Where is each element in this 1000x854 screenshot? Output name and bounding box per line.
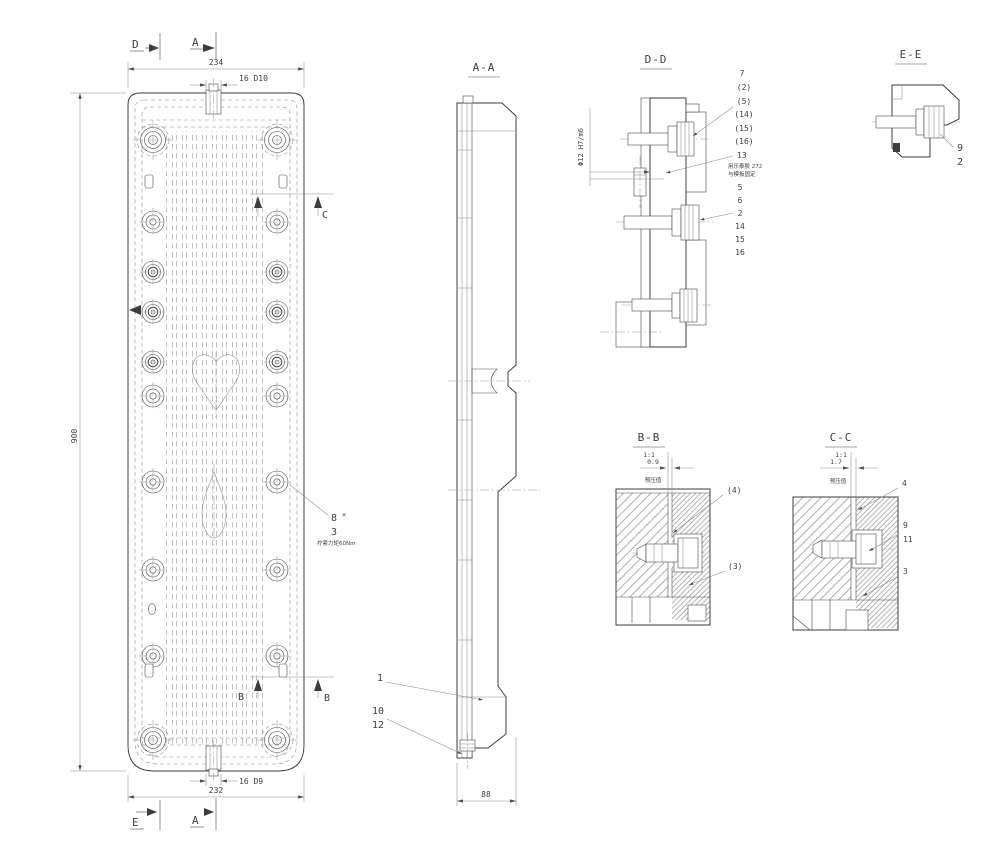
- callout-p3: (3): [728, 562, 742, 571]
- callout-9: 9: [957, 143, 963, 154]
- callout-3: 3: [903, 567, 908, 576]
- fit-note: Φ12 H7/m6: [577, 128, 585, 166]
- section-marker-e-label: E: [132, 816, 140, 829]
- callout-p16: (16): [734, 137, 753, 146]
- callout-11: 11: [903, 535, 913, 544]
- glue-note-line2: 与模板固定: [728, 170, 756, 178]
- engineering-drawing: D A E A C: [0, 0, 1000, 854]
- callout-p5: (5): [737, 97, 751, 106]
- callout-p15: (15): [734, 124, 753, 133]
- section-aa-title: A-A: [473, 61, 496, 74]
- callout-4: 4: [902, 479, 907, 488]
- callout-13: 13: [737, 151, 747, 160]
- dim-234: 234: [209, 58, 224, 67]
- dim-0-9: 0.9: [647, 458, 659, 466]
- callout-1: 1: [377, 673, 383, 684]
- callout-6: 6: [738, 196, 743, 205]
- callout-7: 7: [740, 69, 745, 78]
- section-marker-c-label: C: [322, 210, 328, 221]
- dim-232: 232: [209, 786, 224, 795]
- callout-3-label: 3: [331, 527, 337, 538]
- side-tab: [145, 664, 153, 677]
- aa-top-tab: [463, 96, 473, 103]
- callout-p14: (14): [734, 110, 753, 119]
- cc-dim-note: 预压值: [830, 477, 847, 485]
- ee-seal: [893, 143, 900, 152]
- side-tab: [279, 175, 287, 188]
- vent-slot-pattern: [163, 131, 266, 747]
- section-marker-d-label: D: [132, 38, 140, 51]
- dim-1-7: 1.7: [830, 458, 842, 466]
- callout-5: 5: [738, 183, 743, 192]
- torque-note: 拧紧力矩60Nm: [317, 539, 355, 547]
- section-bb-title: B-B: [638, 431, 661, 444]
- callout-14: 14: [735, 222, 745, 231]
- callout-p2: (2): [737, 83, 751, 92]
- bb-dim-note: 预压值: [645, 476, 662, 484]
- section-dd-title: D-D: [645, 53, 668, 66]
- dim-88: 88: [481, 790, 491, 799]
- bb-band-notch: [688, 605, 706, 621]
- drawing-canvas: D A E A C: [0, 0, 1000, 854]
- section-marker-b-label: B: [324, 693, 330, 704]
- dim-900: 900: [70, 429, 79, 444]
- callout-2: 2: [957, 157, 963, 168]
- dim-16d9: 16 D9: [239, 777, 263, 786]
- aa-face-strip: [458, 104, 472, 758]
- callout-9: 9: [903, 521, 908, 530]
- section-cc-title: C-C: [830, 431, 853, 444]
- section-ee-title: E-E: [900, 48, 923, 61]
- callout-8-mark: ×: [342, 511, 346, 519]
- side-tab: [145, 175, 153, 188]
- callout-16: 16: [735, 248, 745, 257]
- callout-10: 10: [372, 706, 384, 717]
- callout-2: 2: [738, 209, 743, 218]
- callout-15: 15: [735, 235, 745, 244]
- side-tab: [279, 664, 287, 677]
- callout-12: 12: [372, 720, 384, 731]
- dim-16d10: 16 D10: [239, 74, 268, 83]
- glue-note-line1: 用乐泰胶 272: [728, 162, 762, 170]
- callout-8-label: 8: [331, 513, 337, 524]
- callout-p4: (4): [727, 486, 741, 495]
- cc-band-notch: [846, 610, 868, 630]
- section-marker-a-top-label: A: [192, 36, 200, 49]
- section-marker-b-inner-label: B: [238, 692, 244, 703]
- section-marker-a-bottom-label: A: [192, 814, 200, 827]
